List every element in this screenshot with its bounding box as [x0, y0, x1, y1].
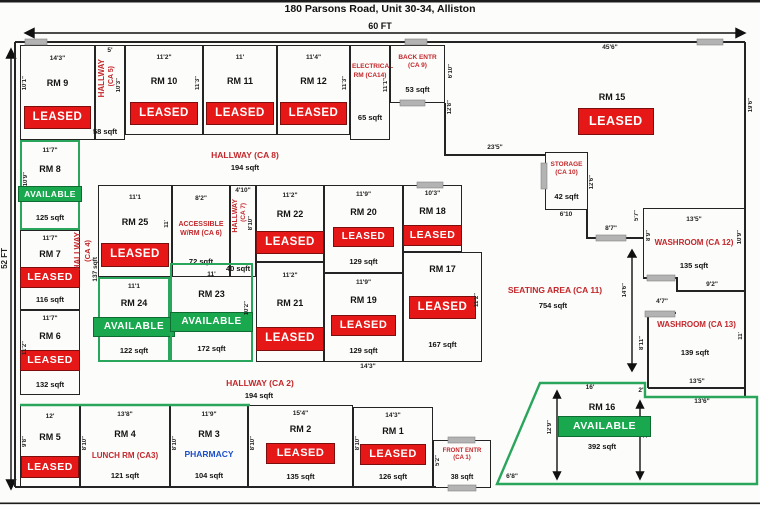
room-rm23: 11' RM 23 AVAILABLE 172 sqft 10'2"	[170, 263, 253, 362]
area-label: 42 sqft	[554, 192, 578, 201]
area-label: 125 sqft	[36, 213, 64, 222]
room-name: RM 7	[39, 250, 61, 260]
room-name: RM 4	[114, 430, 136, 440]
area-label: 167 sqft	[428, 340, 456, 349]
hallway-name-ca: (CA 5)	[108, 66, 115, 86]
dimension-label: 11'7"	[42, 236, 57, 243]
room-rm18: 10'3" RM 18 LEASED	[403, 185, 462, 252]
status-badge-rm9: LEASED	[24, 106, 92, 130]
area-label: 53 sqft	[405, 85, 429, 94]
dimension-label: 11'7"	[42, 316, 57, 323]
dimension-label: 11'3"	[342, 76, 348, 90]
area-label: 392 sqft	[572, 442, 632, 451]
room-rm21: 11'2" RM 21 LEASED	[256, 262, 324, 362]
room-name: RM 1	[382, 427, 404, 437]
dimension-label: 13'6"	[678, 399, 726, 406]
status-badge-rm25: LEASED	[101, 243, 169, 267]
dimension-label: 11'	[164, 220, 170, 228]
room-rm7: 11'7" RM 7 LEASED 116 sqft	[20, 230, 80, 310]
status-badge-rm5: LEASED	[21, 456, 79, 479]
dimension-label: 8'2"	[195, 196, 207, 203]
room-name: RM 20	[350, 208, 377, 218]
room-rm25: 11'1 RM 25 LEASED 11'	[98, 185, 172, 277]
dimension-label: 16'	[572, 385, 608, 392]
dimension-label: 14'3"	[340, 364, 396, 371]
hallway-ca8-name: HALLWAY (CA 8)	[190, 150, 300, 160]
dimension-label: 23'5"	[468, 145, 522, 152]
dimension-label: 4'10"	[227, 188, 259, 195]
back-entrance-ca9: BACK ENTR (CA 9) 53 sqft	[390, 45, 445, 103]
status-badge-rm8: AVAILABLE	[18, 186, 82, 203]
room-name: RM 19	[350, 296, 377, 306]
room-name: RM 12	[300, 77, 327, 87]
floor-plan: 180 Parsons Road, Unit 30-34, Alliston 6…	[0, 0, 760, 505]
dimension-label: 11'1"	[383, 78, 389, 92]
hallway-ca5: 5' HALLWAY (CA 5) 10'3" 58 sqft	[95, 45, 125, 140]
hallway-name: HALLWAY	[232, 199, 239, 233]
hallway-name-ca: (CA 7)	[241, 203, 248, 222]
room-name: RM 8	[39, 165, 61, 175]
area-label: 194 sqft	[228, 391, 290, 400]
seating-area-name: SEATING AREA (CA 11)	[500, 285, 610, 295]
area-label: 65 sqft	[358, 113, 382, 122]
width-dimension-label: 60 FT	[355, 21, 405, 31]
status-badge-rm24: AVAILABLE	[93, 317, 175, 337]
room-name: RM 10	[151, 77, 178, 87]
room-name: RM 25	[122, 218, 149, 228]
area-label: 139 sqft	[665, 348, 725, 357]
area-label: 122 sqft	[120, 346, 148, 355]
dimension-label: 11'2"	[22, 341, 28, 355]
dimension-label: 2'	[634, 388, 648, 395]
dimension-label: 8'10"	[82, 436, 88, 450]
room-name: FRONT ENTR (CA 1)	[438, 448, 486, 463]
hallway-name-ca: (CA 4)	[84, 240, 92, 262]
dimension-label: 12'8"	[447, 100, 453, 114]
room-type-label: LUNCH RM (CA3)	[92, 451, 158, 460]
dimension-label: 10'9"	[23, 172, 29, 186]
room-name-rm16: RM 16	[572, 403, 632, 413]
area-label: 137 sqft	[93, 257, 100, 282]
room-rm11: 11' RM 11 LEASED	[203, 45, 277, 135]
dimension-label: 10'2"	[244, 301, 250, 315]
dimension-label: 10'1"	[22, 76, 28, 90]
dimension-label: 14'6"	[622, 283, 628, 297]
area-label: 116 sqft	[36, 295, 64, 304]
status-badge-rm23: AVAILABLE	[170, 312, 252, 332]
dimension-label: 6'8"	[495, 474, 529, 481]
room-name: RM 9	[47, 79, 69, 89]
dimension-label: 13'5"	[686, 217, 701, 224]
room-rm19: 11'9" RM 19 LEASED 129 sqft	[324, 273, 403, 362]
dimension-label: 15'4"	[293, 411, 308, 418]
area-label: 126 sqft	[379, 472, 407, 481]
status-badge-rm11: LEASED	[206, 102, 274, 126]
area-label: 121 sqft	[111, 471, 139, 480]
dimension-label: 11'1	[128, 284, 140, 291]
dimension-label: 14'3"	[50, 56, 65, 63]
dimension-label: 11'2"	[474, 293, 480, 307]
dimension-label: 45'6"	[580, 45, 640, 52]
dimension-label: 8'11"	[639, 336, 645, 350]
room-name: RM 21	[277, 299, 304, 309]
room-name: ACCESSIBLE W/RM (CA 6)	[175, 221, 227, 239]
room-rm8: 11'7" RM 8 AVAILABLE 125 sqft 10'9"	[20, 140, 80, 230]
dimension-label: 12'9"	[547, 420, 553, 434]
dimension-label: 11'7"	[42, 148, 57, 155]
washroom-ca12: 13'5" WASHROOM (CA 12) 135 sqft	[643, 208, 745, 278]
area-label: 194 sqft	[215, 163, 275, 172]
room-name: RM 23	[198, 290, 225, 300]
room-name: RM 2	[290, 425, 312, 435]
dimension-label: 5'7"	[634, 210, 640, 221]
dimension-label: 13'5"	[672, 379, 722, 386]
status-badge-rm15: LEASED	[578, 108, 654, 135]
area-label: 135 sqft	[286, 472, 314, 481]
area-label: 104 sqft	[195, 471, 223, 480]
dimension-label: 9'8"	[22, 436, 28, 447]
dimension-label: 5'	[96, 48, 124, 55]
room-name: WASHROOM (CA 12)	[655, 238, 734, 247]
area-label: 754 sqft	[520, 301, 586, 310]
room-rm17: RM 17 LEASED 167 sqft 11'2"	[403, 252, 482, 362]
status-badge-rm10: LEASED	[130, 102, 198, 126]
room-rm5: 12' RM 5 LEASED 9'8"	[20, 405, 80, 487]
status-badge-rm22: LEASED	[256, 231, 324, 255]
room-name: STORAGE (CA 10)	[548, 161, 586, 177]
status-badge-rm6: LEASED	[20, 350, 80, 371]
room-type-label: PHARMACY	[184, 450, 233, 459]
room-name: RM 3	[198, 430, 220, 440]
dimension-label: 5'2"	[435, 455, 441, 466]
dimension-label: 8'7"	[592, 226, 630, 233]
dimension-label: 12'6"	[589, 175, 595, 189]
room-name-rm15: RM 15	[582, 93, 642, 103]
room-rm2: 15'4" RM 2 LEASED 135 sqft 8'10"	[248, 405, 353, 487]
dimension-label: 14'3"	[385, 413, 400, 420]
area-label: 129 sqft	[349, 346, 377, 355]
room-name: RM 22	[277, 210, 304, 220]
room-name: RM 24	[121, 299, 148, 309]
area-label: 38 sqft	[451, 474, 474, 481]
room-name: RM 17	[429, 265, 456, 275]
room-name: BACK ENTR (CA 9)	[395, 54, 441, 70]
dimension-label: 11'3"	[195, 76, 201, 90]
status-badge-rm20: LEASED	[333, 227, 395, 247]
room-rm20: 11'9" RM 20 LEASED 129 sqft	[324, 185, 403, 273]
dimension-label: 8'10"	[248, 216, 254, 230]
room-rm12: 11'4" RM 12 LEASED 11'3"	[277, 45, 350, 135]
room-name: RM 11	[227, 77, 253, 87]
storage-ca10: STORAGE (CA 10) 42 sqft	[545, 152, 588, 210]
area-label: 58 sqft	[93, 127, 117, 136]
dimension-label: 11'9"	[201, 412, 216, 419]
dimension-label: 10'3"	[425, 191, 440, 198]
room-rm10: 11'2" RM 10 LEASED 11'3"	[125, 45, 203, 135]
plan-title: 180 Parsons Road, Unit 30-34, Alliston	[240, 3, 520, 15]
room-rm9: 14'3" RM 9 LEASED 10'1"	[20, 45, 95, 140]
dimension-label: 9'2"	[692, 282, 732, 289]
dimension-label: 8'10"	[355, 436, 361, 450]
hallway-ca2-name: HALLWAY (CA 2)	[205, 378, 315, 388]
area-label: 129 sqft	[349, 257, 377, 266]
room-rm22: 11'2" RM 22 LEASED	[256, 185, 324, 262]
area-label: 132 sqft	[36, 380, 64, 389]
height-dimension-label: 52 FT	[1, 248, 9, 269]
dimension-label: 4'7"	[645, 299, 679, 306]
room-rm24: 11'1 RM 24 AVAILABLE 122 sqft	[98, 277, 170, 362]
dimension-label: 6'10"	[448, 64, 454, 78]
hallway-name: HALLWAY	[98, 59, 106, 97]
electrical-room-ca14: ELECTRICAL RM (CA14) 65 sqft 11'1"	[350, 45, 390, 140]
dimension-label: 11'	[738, 332, 744, 340]
room-name: RM 5	[39, 433, 61, 443]
dimension-label: 11'	[236, 55, 244, 62]
dimension-label: 11'4"	[306, 55, 321, 62]
dimension-label: 11'2"	[156, 55, 171, 62]
room-rm6: 11'7" RM 6 LEASED 132 sqft 11'2"	[20, 310, 80, 395]
dimension-label: 10'3"	[116, 78, 122, 92]
dimension-label: 8'10"	[172, 436, 178, 450]
hallway-ca4: HALLWAY (CA 4) 137 sqft	[72, 232, 99, 332]
dimension-label: 11'9"	[356, 280, 371, 287]
status-badge-rm12: LEASED	[280, 102, 348, 126]
room-rm4-lunch: 13'8" RM 4 LUNCH RM (CA3) 121 sqft 8'10"	[80, 405, 170, 487]
status-badge-rm18: LEASED	[403, 225, 463, 246]
room-name: RM 6	[39, 332, 61, 342]
dimension-label: 12'	[46, 414, 55, 421]
status-badge-rm21: LEASED	[256, 327, 324, 351]
status-badge-rm19: LEASED	[331, 315, 397, 336]
dimension-label: 11'2"	[282, 193, 297, 200]
room-rm3-pharmacy: 11'9" RM 3 PHARMACY 104 sqft 8'10"	[170, 405, 248, 487]
status-badge-rm1: LEASED	[360, 444, 426, 465]
dimension-label: 11'9"	[356, 192, 371, 199]
washroom-ca13-name: WASHROOM (CA 13)	[648, 320, 745, 329]
dimension-label: 11'2"	[282, 273, 297, 280]
dimension-label: 8'10"	[250, 436, 256, 450]
status-badge-rm7: LEASED	[20, 267, 80, 288]
status-badge-rm17: LEASED	[409, 296, 477, 320]
dimension-label: 11'1	[129, 195, 141, 202]
dimension-label: 19'6"	[748, 98, 754, 112]
area-label: 135 sqft	[680, 261, 708, 270]
area-label: 172 sqft	[197, 344, 225, 353]
room-name: RM 18	[419, 207, 446, 217]
status-badge-rm2: LEASED	[266, 443, 336, 464]
dimension-label: 13'8"	[117, 412, 132, 419]
front-entrance-ca1: FRONT ENTR (CA 1) 38 sqft 5'2"	[433, 440, 491, 488]
dimension-label: 6'10	[543, 212, 589, 219]
hallway-name: HALLWAY	[74, 232, 82, 270]
dimension-label: 11'	[207, 272, 215, 279]
status-badge-rm16: AVAILABLE	[558, 416, 651, 437]
room-rm1: 14'3" RM 1 LEASED 126 sqft 8'10"	[353, 407, 433, 487]
